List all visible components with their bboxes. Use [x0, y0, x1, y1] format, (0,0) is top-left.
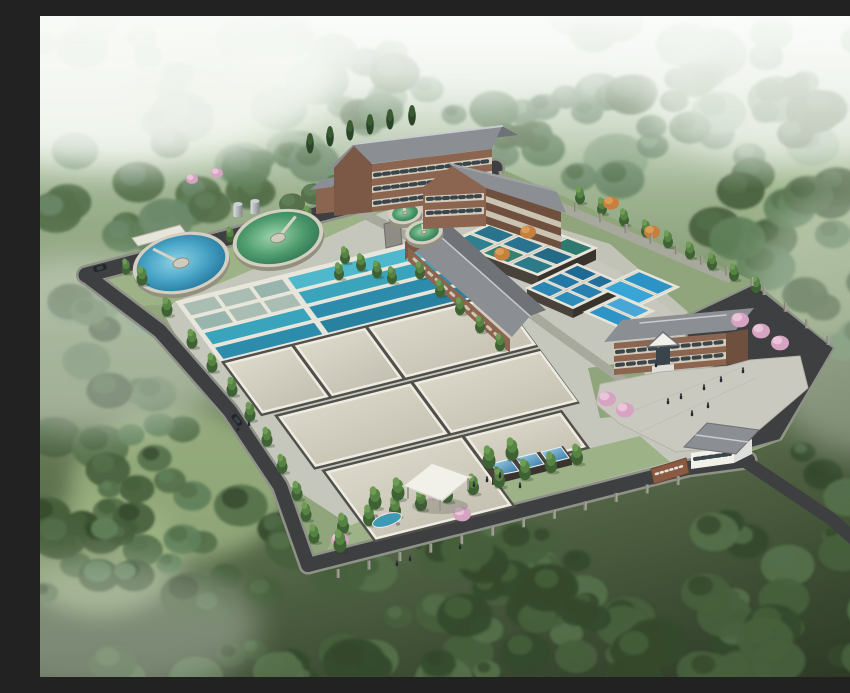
pond-rock: [374, 514, 378, 517]
silo: [234, 202, 243, 217]
office-end-wall: [726, 329, 748, 365]
rendering-canvas: [40, 16, 850, 677]
admin-annex-wall: [316, 185, 334, 214]
aerial-rendering-water-treatment-plant: [40, 16, 850, 677]
pond-rock: [396, 522, 400, 525]
office-entrance-door: [656, 346, 670, 366]
silo: [251, 199, 260, 214]
